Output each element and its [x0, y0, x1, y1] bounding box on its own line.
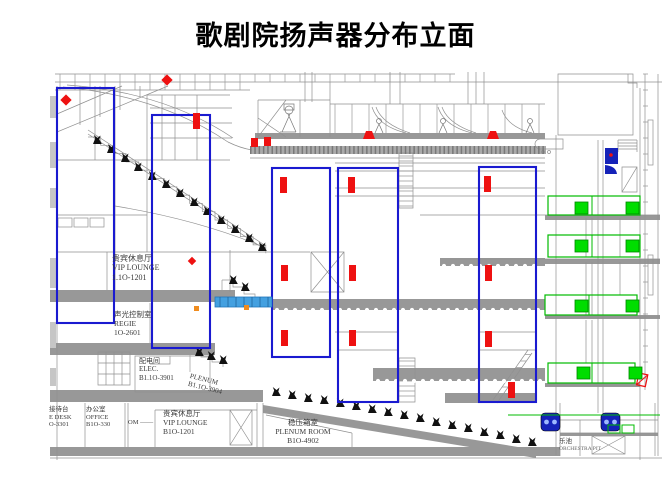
speaker-zone — [479, 167, 536, 402]
orange-marker — [194, 306, 199, 311]
seat-symbol — [217, 215, 226, 224]
effect-box — [622, 425, 634, 433]
speaker-marker — [193, 113, 200, 129]
room-label-reception: 接待台E DESKO-3301 — [49, 406, 72, 429]
room-label-regie: 声光控制室REGIE1O-2601 — [114, 311, 152, 338]
soffit-scallop — [496, 264, 500, 268]
orange-marker — [244, 305, 249, 310]
speaker-zone — [338, 168, 398, 402]
speaker-zone — [57, 88, 114, 323]
cluster-dot — [609, 153, 613, 157]
soffit-scallop — [284, 308, 288, 312]
label-fragment-om: OM —— — [128, 419, 153, 427]
soffit-scallop — [457, 379, 461, 383]
room-label-vip-b1: 贵宾休息厅VIP LOUNGEB1O-1201 — [163, 410, 208, 437]
soffit-scallop — [464, 308, 468, 312]
speaker-marker-small — [264, 137, 271, 146]
soffit-scallop — [392, 308, 396, 312]
soffit-scallop — [442, 264, 446, 268]
effect-speaker-marker — [626, 300, 639, 312]
speaker-marker — [485, 331, 492, 347]
pit-monitor-driver — [544, 420, 549, 425]
soffit-scallop — [302, 308, 306, 312]
seat-symbol — [400, 410, 409, 419]
pit-monitor-driver — [604, 420, 609, 425]
seat-symbol — [288, 390, 297, 399]
seat-symbol — [496, 430, 505, 439]
soffit-scallop — [410, 308, 414, 312]
soffit-scallop — [401, 308, 405, 312]
left-edge-boxes — [50, 96, 56, 386]
soffit-scallop — [428, 308, 432, 312]
soffit-scallop — [403, 379, 407, 383]
soffit-scallop — [320, 308, 324, 312]
effect-speaker-zone — [545, 295, 637, 315]
soffit-scallop — [311, 308, 315, 312]
effect-speaker-marker — [575, 240, 588, 252]
speaker-marker — [280, 177, 287, 193]
mini-speaker-marker — [188, 257, 196, 265]
seat-symbol — [272, 387, 281, 396]
soffit-scallop — [538, 379, 542, 383]
soffit-scallop — [505, 264, 509, 268]
seat-symbol — [241, 282, 250, 291]
seat-symbol — [480, 427, 489, 436]
soffit-scallop — [365, 308, 369, 312]
room-label-vip-upper: 贵宾休息厅VIP LOUNGE1.1O-1201 — [112, 254, 159, 282]
seat-symbol — [384, 407, 393, 416]
soffit-scallop — [502, 379, 506, 383]
gallery-speaker-marker — [487, 131, 499, 139]
lighting-bridge — [215, 297, 272, 307]
soffit-scallop — [473, 308, 477, 312]
room-label-office: 办公室OFFICEB1O-330 — [86, 406, 110, 429]
soffit-scallop — [439, 379, 443, 383]
soffit-scallop — [500, 308, 504, 312]
soffit-scallop — [466, 379, 470, 383]
speaker-zone — [272, 168, 330, 357]
soffit-scallop — [356, 308, 360, 312]
pit-monitor-speaker — [541, 413, 560, 431]
room-label-elec: 配电间ELEC.B1.1O-3901 — [139, 357, 174, 382]
seat-symbol — [368, 404, 377, 413]
soffit-scallop — [529, 379, 533, 383]
seat-symbol — [416, 413, 425, 422]
soffit-scallop — [376, 379, 380, 383]
pit-monitor-speaker — [601, 413, 620, 431]
soffit-scallop — [518, 308, 522, 312]
seat-symbol — [432, 417, 441, 426]
soffit-scallop — [347, 308, 351, 312]
soffit-scallop — [484, 379, 488, 383]
soffit-scallop — [293, 308, 297, 312]
soffit-scallop — [460, 264, 464, 268]
ceiling-speaker-marker — [60, 94, 71, 105]
soffit-scallop — [421, 379, 425, 383]
slide-background: 歌剧院扬声器分布立面 — [0, 0, 671, 479]
speaker-marker — [348, 177, 355, 193]
speaker-marker — [485, 265, 492, 281]
seat-symbol — [528, 437, 537, 446]
speaker-zone — [152, 115, 210, 348]
soffit-scallop — [493, 379, 497, 383]
soffit-scallop — [491, 308, 495, 312]
seat-symbol — [448, 420, 457, 429]
soffit-scallop — [451, 264, 455, 268]
soffit-scallop — [383, 308, 387, 312]
room-label-orchestra-pit: 乐池ORCHESTRA PIT — [559, 438, 601, 452]
speaker-marker — [349, 330, 356, 346]
speaker-marker-small — [251, 138, 258, 147]
speaker-marker — [484, 176, 491, 192]
speaker-marker — [281, 265, 288, 281]
soffit-scallop — [430, 379, 434, 383]
effect-speaker-marker — [629, 367, 642, 379]
seat-symbol — [134, 162, 143, 171]
pit-monitor-driver — [552, 420, 557, 425]
speaker-marker — [508, 382, 515, 398]
speaker-marker — [281, 330, 288, 346]
seat-symbol — [512, 434, 521, 443]
seat-symbol — [320, 395, 329, 404]
soffit-scallop — [514, 264, 518, 268]
speaker-cluster-icon — [605, 165, 617, 174]
room-label-plenum-b1: 稳压箱室PLENUM ROOMB1O-4902 — [263, 419, 343, 446]
soffit-scallop — [455, 308, 459, 312]
ceiling-speaker-marker — [161, 74, 172, 85]
effect-speaker-marker — [575, 202, 588, 214]
effect-speaker-marker — [626, 202, 639, 214]
soffit-scallop — [275, 308, 279, 312]
soffit-scallop — [374, 308, 378, 312]
effect-speaker-marker — [577, 367, 590, 379]
seat-symbol — [219, 355, 228, 364]
seat-symbol — [464, 423, 473, 432]
soffit-scallop — [448, 379, 452, 383]
soffit-scallop — [446, 308, 450, 312]
soffit-scallop — [523, 264, 527, 268]
speaker-marker — [349, 265, 356, 281]
pit-monitor-driver — [612, 420, 617, 425]
effect-speaker-marker — [575, 300, 588, 312]
gallery-speaker-marker — [363, 131, 375, 139]
soffit-scallop — [385, 379, 389, 383]
soffit-scallop — [527, 308, 531, 312]
soffit-scallop — [520, 379, 524, 383]
seat-symbol — [304, 393, 313, 402]
soffit-scallop — [437, 308, 441, 312]
soffit-scallop — [469, 264, 473, 268]
soffit-scallop — [419, 308, 423, 312]
soffit-scallop — [482, 308, 486, 312]
soffit-scallop — [509, 308, 513, 312]
effect-speaker-marker — [626, 240, 639, 252]
soffit-scallop — [412, 379, 416, 383]
